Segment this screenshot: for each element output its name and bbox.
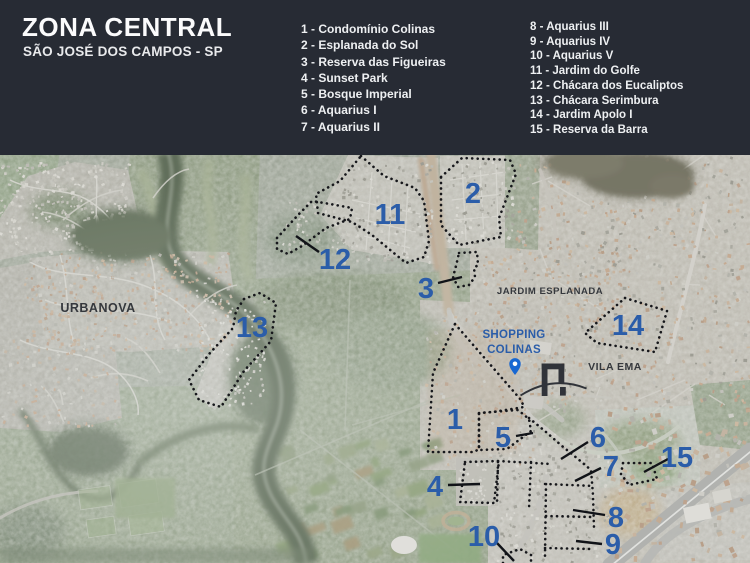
svg-text:COLINAS: COLINAS — [487, 344, 541, 356]
svg-text:6: 6 — [590, 422, 606, 454]
svg-text:5: 5 — [495, 422, 511, 454]
svg-text:4: 4 — [427, 471, 443, 503]
svg-text:JARDIM ESPLANADA: JARDIM ESPLANADA — [497, 286, 603, 297]
svg-text:1: 1 — [447, 404, 463, 436]
svg-text:URBANOVA: URBANOVA — [60, 301, 135, 315]
svg-text:9: 9 — [605, 529, 621, 561]
svg-text:15: 15 — [661, 442, 693, 474]
svg-text:10: 10 — [468, 521, 500, 553]
svg-text:SHOPPING: SHOPPING — [482, 329, 545, 341]
svg-text:3: 3 — [418, 273, 434, 305]
svg-text:2: 2 — [465, 178, 481, 210]
svg-text:12: 12 — [319, 244, 351, 276]
svg-text:11: 11 — [375, 199, 406, 231]
svg-text:14: 14 — [612, 310, 644, 342]
svg-text:13: 13 — [236, 312, 268, 344]
svg-text:VILA EMA: VILA EMA — [588, 361, 642, 373]
svg-text:7: 7 — [603, 451, 619, 483]
